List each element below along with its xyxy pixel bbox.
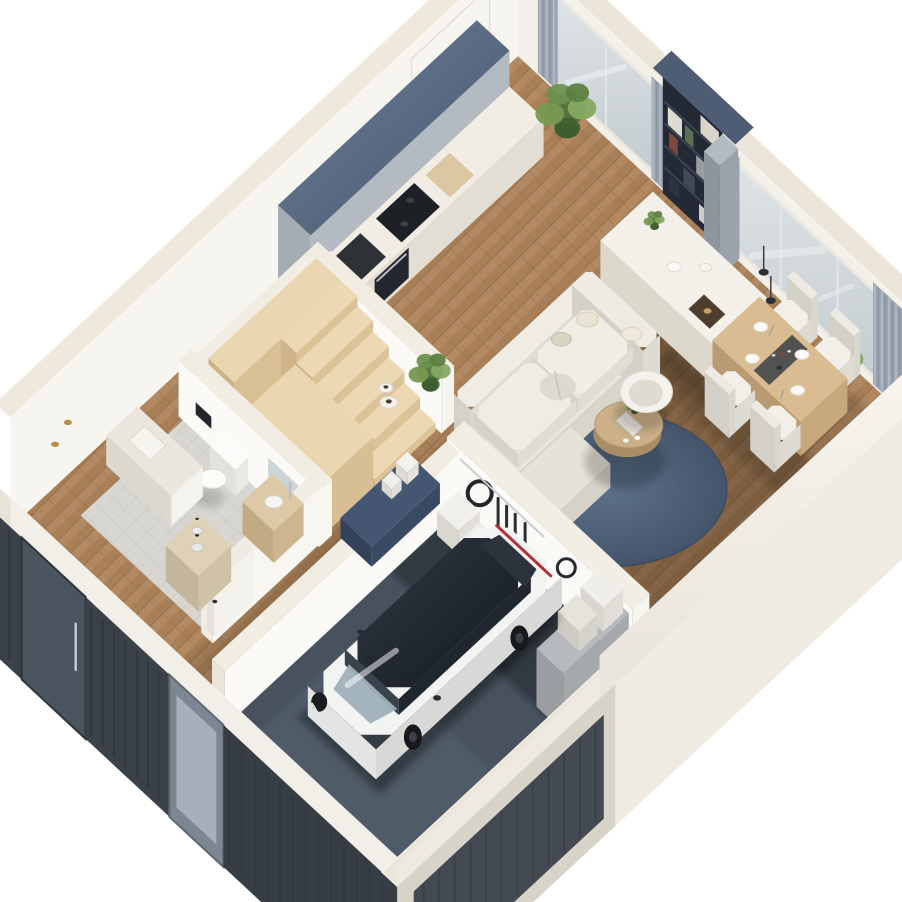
cooktop-burner-1 [406, 197, 414, 202]
coffee-cup-2 [623, 438, 629, 442]
floor-plan-image [0, 0, 902, 902]
dining-chair-2-back-side [854, 330, 860, 380]
wc-basin [265, 496, 283, 508]
coat-hook-1 [64, 420, 72, 425]
plant-kitchen-corner-leaf-4 [535, 102, 564, 125]
plant-kitchen-corner-leaf-5 [566, 83, 589, 102]
dining-chair-3-back-side [729, 388, 735, 438]
scene-layer [0, 0, 902, 902]
decanter-1-cap [195, 518, 199, 520]
car-rim-front-right [409, 732, 417, 742]
car-mirror-left [357, 630, 364, 635]
decanter-2-cap [195, 534, 199, 537]
plant-hall-leaf-4 [409, 367, 429, 383]
egg-chair-seat [629, 380, 663, 407]
dining-candle-1 [772, 354, 776, 356]
coat-hook-2 [51, 442, 59, 447]
car-rim-rear-right [515, 633, 523, 643]
dining-centerpiece-2 [776, 366, 782, 370]
dining-candle-2 [787, 350, 791, 352]
vase-1-mouth [383, 385, 388, 388]
sofa-pillow-3 [622, 327, 642, 341]
plant-hall-leaf-5 [430, 354, 446, 367]
island-plant-leaf-5 [654, 211, 662, 217]
island-globe-lamp [699, 263, 711, 271]
dining-plate-3 [795, 350, 809, 360]
dining-plate-1 [754, 322, 768, 332]
island-plant-leaf-4 [644, 218, 654, 226]
pendant-lamp-2 [766, 297, 776, 304]
dining-chair-4-back-side [774, 423, 780, 473]
cooktop-burner-2 [400, 221, 408, 226]
floor-plan-render [0, 0, 902, 902]
wc-door-handle [212, 600, 217, 603]
sofa-pillow-1 [577, 312, 599, 327]
wc-toilet-bowl [199, 469, 227, 488]
dining-centerpiece-1 [779, 353, 785, 357]
car-mirror-right [433, 695, 441, 700]
dining-chair-1-back-side [811, 293, 817, 343]
decanter-2 [191, 543, 203, 551]
island-bowl [667, 262, 681, 272]
vase-2-mouth [386, 399, 392, 403]
coffee-cup-1 [634, 436, 640, 440]
island-tray-food [704, 308, 712, 313]
dining-plate-4 [791, 386, 805, 396]
dining-plate-2 [745, 354, 759, 364]
sofa-pillow-2 [551, 333, 571, 347]
pendant-lamp-1 [759, 269, 769, 276]
decanter-1 [192, 527, 202, 534]
